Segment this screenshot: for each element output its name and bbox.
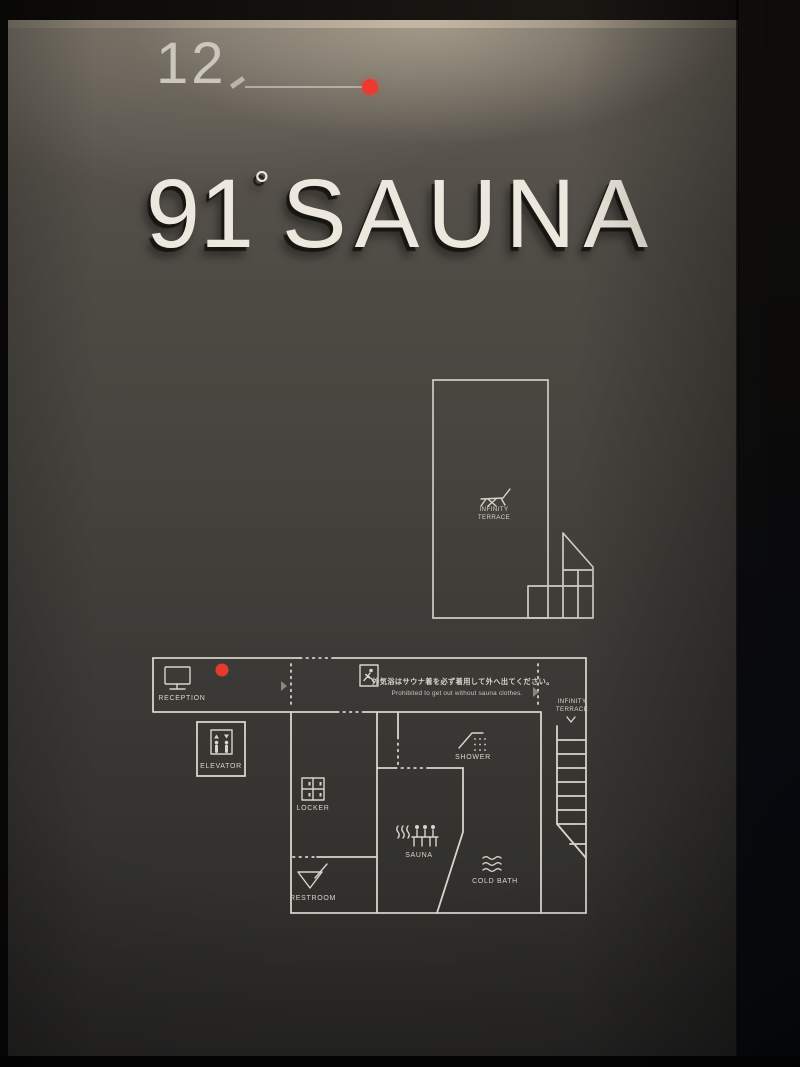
panel-right-seam [736,0,739,1067]
frame-top-edge [0,0,800,20]
panel-top-bevel [8,20,740,28]
degree-symbol: ° [254,164,270,208]
wall-right-of-panel [738,0,800,1067]
frame-left-edge [0,0,8,1067]
sign-title: 91°SAUNA [146,158,656,270]
title-word: SAUNA [282,159,656,268]
title-number: 91 [146,159,254,268]
floor-number: 12 [156,30,227,97]
floor-indicator-line [245,86,369,88]
photo-frame: 12 91°SAUNA INFINITY TERRACE [0,0,800,1067]
frame-bottom-edge [0,1056,800,1067]
floor-indicator-red-dot [362,79,378,95]
